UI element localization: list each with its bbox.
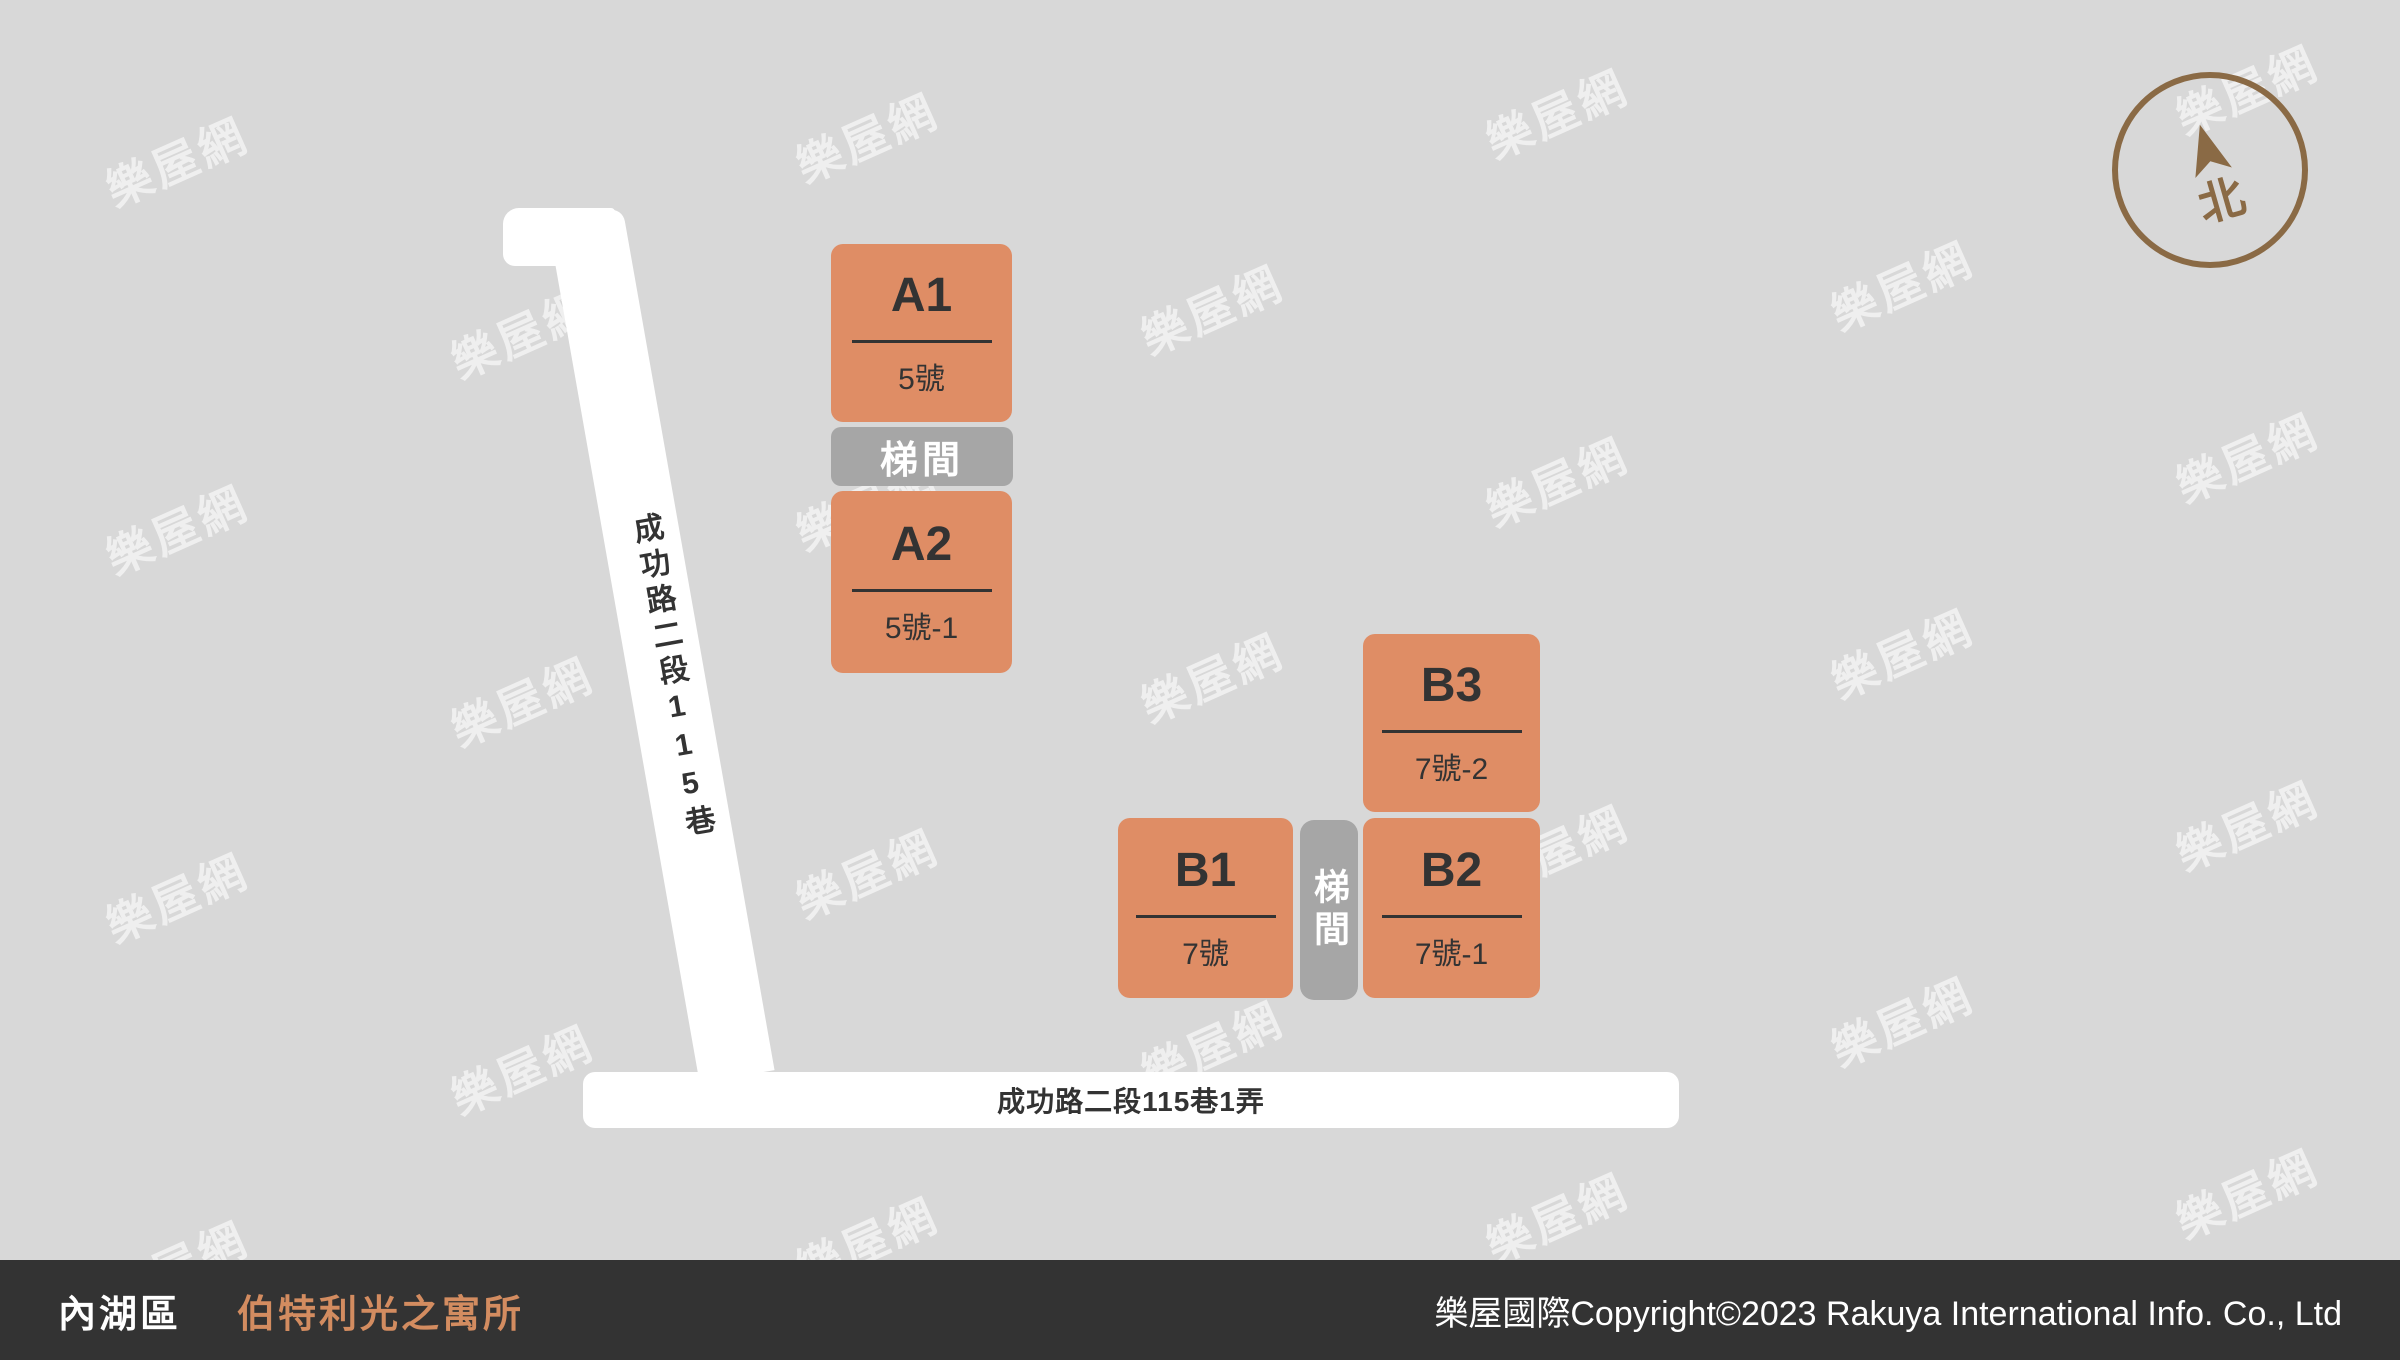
divider-line bbox=[1382, 915, 1522, 918]
compass-north-label: 北 bbox=[2193, 170, 2251, 231]
watermark-text: 樂屋網 bbox=[94, 835, 258, 956]
unit-block-b1[interactable]: B1 7號 bbox=[1118, 818, 1293, 998]
watermark-text: 樂屋網 bbox=[94, 467, 258, 588]
stairwell-a: 梯間 bbox=[831, 427, 1013, 486]
building-name: 伯特利光之寓所 bbox=[237, 1283, 524, 1338]
watermark-text: 樂屋網 bbox=[439, 639, 603, 760]
stairwell-label: 梯間 bbox=[880, 429, 964, 484]
divider-line bbox=[1136, 915, 1276, 918]
watermark-text: 樂屋網 bbox=[1474, 419, 1638, 540]
copyright-text: 樂屋國際Copyright©2023 Rakuya International … bbox=[1434, 1286, 2342, 1335]
stairwell-b: 梯間 bbox=[1300, 820, 1358, 1000]
divider-line bbox=[1382, 730, 1522, 733]
watermark-text: 樂屋網 bbox=[1474, 1155, 1638, 1276]
unit-address: 7號-1 bbox=[1415, 940, 1488, 970]
compass-needle-group: 北 bbox=[2173, 115, 2254, 232]
watermark-text: 樂屋網 bbox=[2164, 763, 2328, 884]
compass: 北 bbox=[2112, 72, 2308, 268]
watermark-text: 樂屋網 bbox=[1129, 615, 1293, 736]
site-plan-map: 樂屋網樂屋網樂屋網樂屋網樂屋網樂屋網樂屋網樂屋網樂屋網樂屋網樂屋網樂屋網樂屋網樂… bbox=[0, 0, 2400, 1360]
watermark-text: 樂屋網 bbox=[784, 811, 948, 932]
unit-block-b2[interactable]: B2 7號-1 bbox=[1363, 818, 1540, 998]
unit-address: 5號-1 bbox=[885, 614, 958, 644]
watermark-text: 樂屋網 bbox=[784, 75, 948, 196]
unit-address: 7號-2 bbox=[1415, 755, 1488, 785]
road-horizontal-label: 成功路二段115巷1弄 bbox=[997, 1080, 1265, 1120]
footer-bar: 內湖區 伯特利光之寓所 樂屋國際Copyright©2023 Rakuya In… bbox=[0, 1260, 2400, 1360]
unit-block-a1[interactable]: A1 5號 bbox=[831, 244, 1012, 422]
road-horizontal: 成功路二段115巷1弄 bbox=[583, 1072, 1679, 1128]
unit-label: A1 bbox=[891, 272, 952, 320]
watermark-text: 樂屋網 bbox=[1819, 591, 1983, 712]
unit-block-b3[interactable]: B3 7號-2 bbox=[1363, 634, 1540, 812]
watermark-text: 樂屋網 bbox=[439, 1007, 603, 1128]
stairwell-label: 梯間 bbox=[1303, 868, 1355, 952]
watermark-text: 樂屋網 bbox=[2164, 1131, 2328, 1252]
watermark-text: 樂屋網 bbox=[2164, 395, 2328, 516]
watermark-layer: 樂屋網樂屋網樂屋網樂屋網樂屋網樂屋網樂屋網樂屋網樂屋網樂屋網樂屋網樂屋網樂屋網樂… bbox=[0, 0, 2400, 1360]
watermark-text: 樂屋網 bbox=[1819, 959, 1983, 1080]
divider-line bbox=[852, 340, 992, 343]
unit-address: 7號 bbox=[1182, 940, 1229, 970]
unit-block-a2[interactable]: A2 5號-1 bbox=[831, 491, 1012, 673]
district-label: 內湖區 bbox=[58, 1283, 181, 1338]
unit-label: A2 bbox=[891, 521, 952, 569]
unit-address: 5號 bbox=[898, 365, 945, 395]
divider-line bbox=[852, 589, 992, 592]
watermark-text: 樂屋網 bbox=[94, 99, 258, 220]
unit-label: B1 bbox=[1175, 847, 1236, 895]
unit-label: B2 bbox=[1421, 847, 1482, 895]
watermark-text: 樂屋網 bbox=[1129, 247, 1293, 368]
watermark-text: 樂屋網 bbox=[1474, 51, 1638, 172]
watermark-text: 樂屋網 bbox=[1819, 223, 1983, 344]
unit-label: B3 bbox=[1421, 662, 1482, 710]
